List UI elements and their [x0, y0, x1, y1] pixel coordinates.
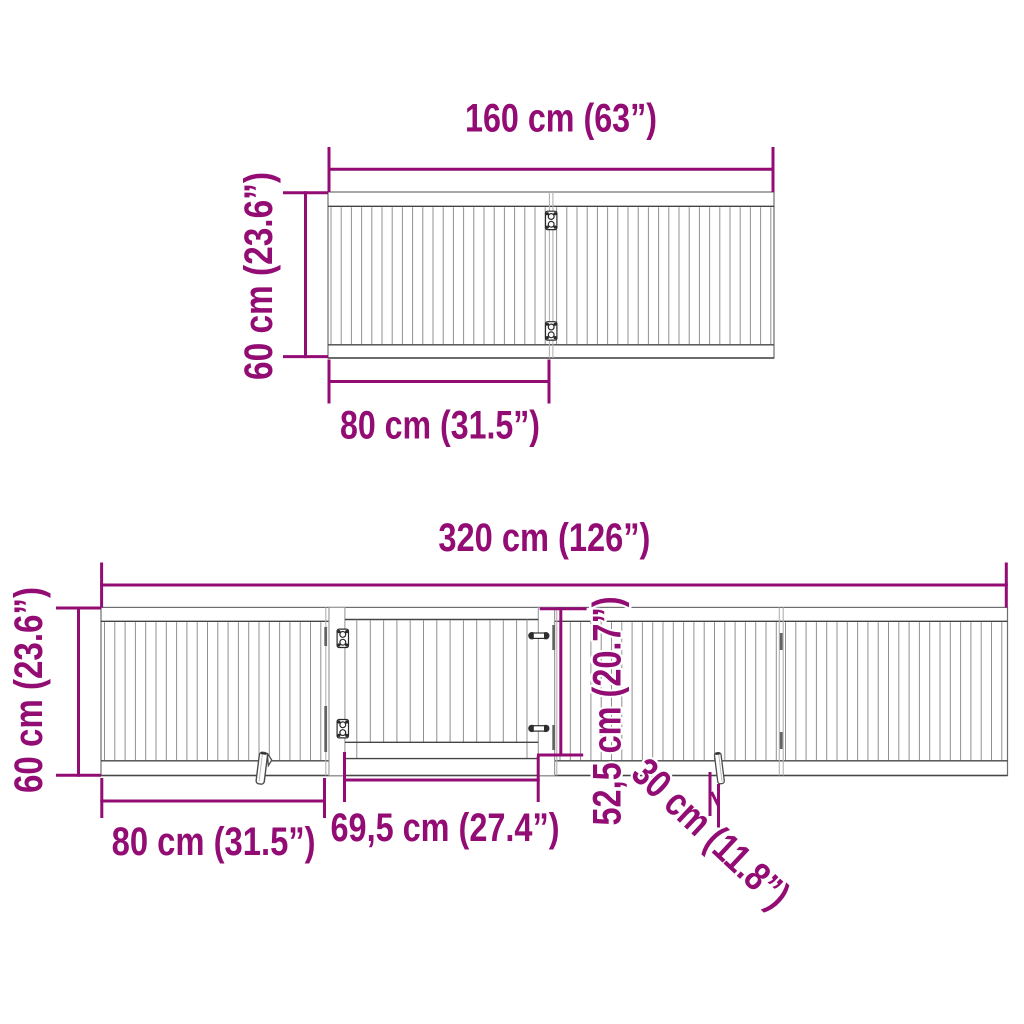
svg-text:80 cm (31.5”): 80 cm (31.5”) [340, 404, 540, 448]
svg-text:52,5 cm (20.7”): 52,5 cm (20.7”) [586, 597, 630, 826]
svg-text:60 cm (23.6”): 60 cm (23.6”) [237, 172, 281, 380]
svg-text:160 cm (63”): 160 cm (63”) [465, 97, 657, 141]
svg-text:69,5 cm (27.4”): 69,5 cm (27.4”) [331, 806, 560, 850]
svg-text:320 cm (126”): 320 cm (126”) [438, 516, 650, 560]
svg-text:80 cm (31.5”): 80 cm (31.5”) [112, 820, 316, 864]
svg-text:60 cm (23.6”): 60 cm (23.6”) [7, 587, 51, 793]
